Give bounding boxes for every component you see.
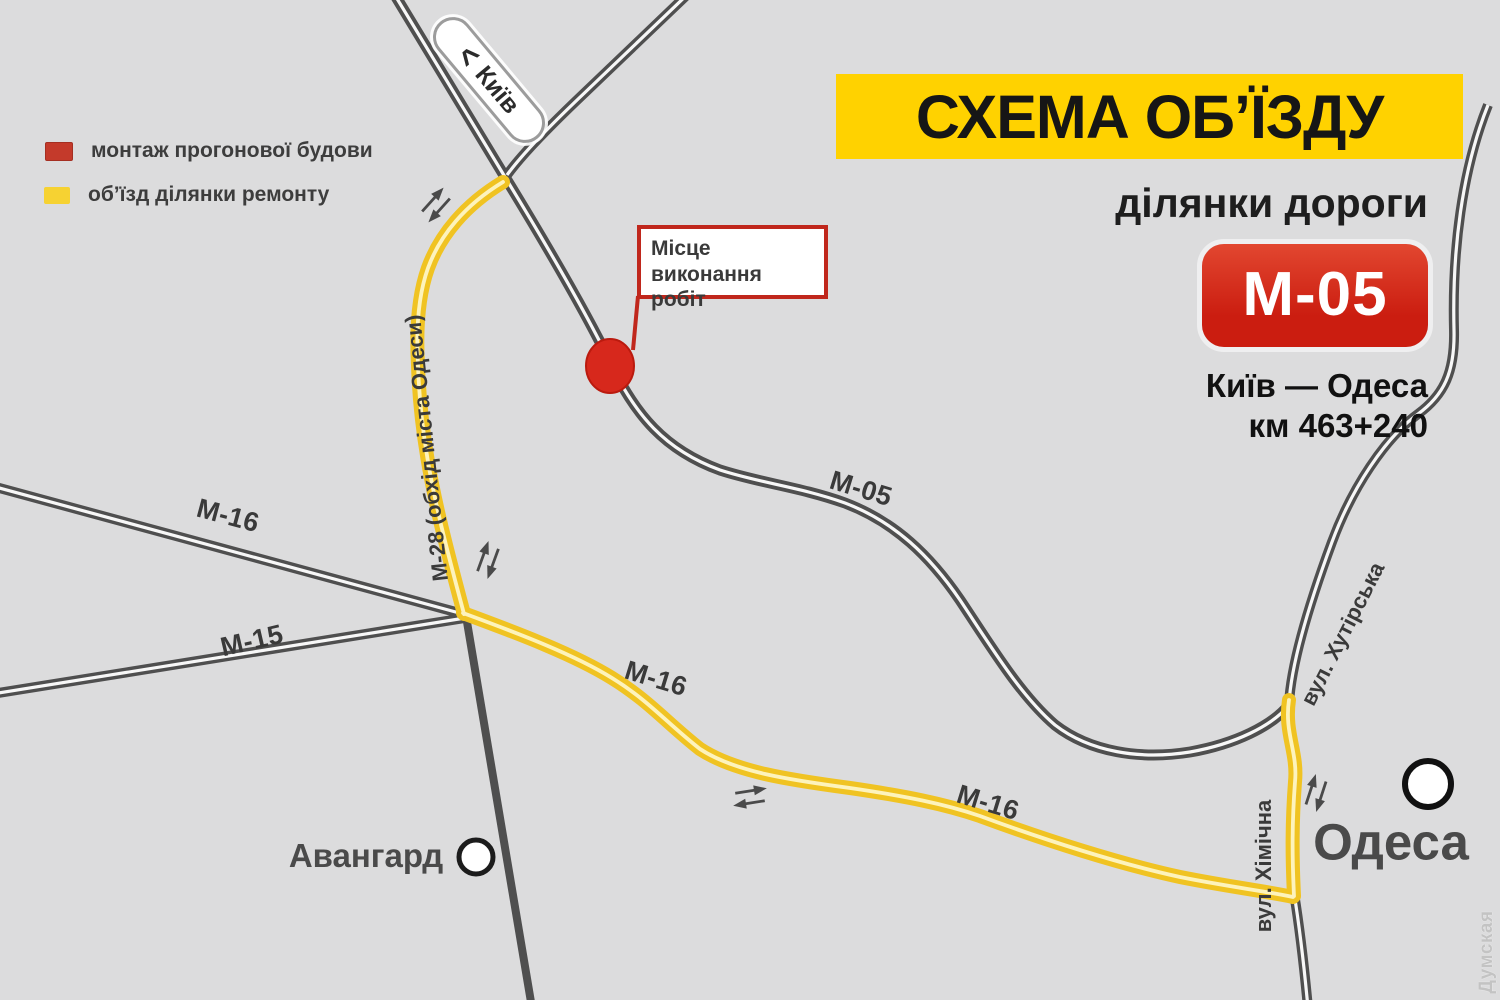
avangard-city-marker (459, 840, 493, 874)
title-column: ділянки дороги М-05 Київ — Одеса км 463+… (1115, 180, 1428, 445)
two-way-arrow-m28 (472, 539, 505, 580)
road-number-badge: М-05 (1202, 244, 1428, 347)
route-kilometer: км 463+240 (1115, 407, 1428, 445)
legend-item-detour: об’їзд ділянки ремонту (44, 183, 329, 207)
road-northeast (507, 0, 690, 175)
work-site-marker (586, 339, 634, 393)
odesa-city-marker (1405, 761, 1451, 807)
two-way-arrow-khimichna (1300, 772, 1332, 813)
legend-label-installation: монтаж прогонової будови (91, 139, 373, 163)
place-label-avangard: Авангард (289, 837, 443, 875)
watermark: Думская (1476, 910, 1498, 993)
work-site-callout: Місце виконання робіт (637, 225, 828, 299)
callout-line2: виконання робіт (651, 262, 814, 313)
place-label-odesa: Одеса (1313, 813, 1469, 872)
legend-item-installation: монтаж прогонової будови (45, 139, 373, 163)
callout-line1: Місце (651, 236, 814, 262)
legend-swatch-yellow (44, 187, 70, 204)
street-label-khimichna: вул. Хімічна (1251, 800, 1277, 933)
legend-label-detour: об’їзд ділянки ремонту (88, 183, 329, 207)
scheme-title: СХЕМА ОБ’ЇЗДУ (916, 82, 1383, 152)
title-banner: СХЕМА ОБ’ЇЗДУ (836, 74, 1463, 159)
callout-connector-line (633, 296, 638, 350)
road-south-single (466, 616, 532, 1000)
two-way-arrow-m16 (731, 783, 770, 810)
legend-swatch-red (45, 142, 73, 161)
route-endpoints: Київ — Одеса (1115, 367, 1428, 405)
scheme-subtitle: ділянки дороги (1115, 180, 1428, 227)
detour-scheme-map: монтаж прогонової будови об’їзд ділянки … (0, 0, 1500, 1000)
